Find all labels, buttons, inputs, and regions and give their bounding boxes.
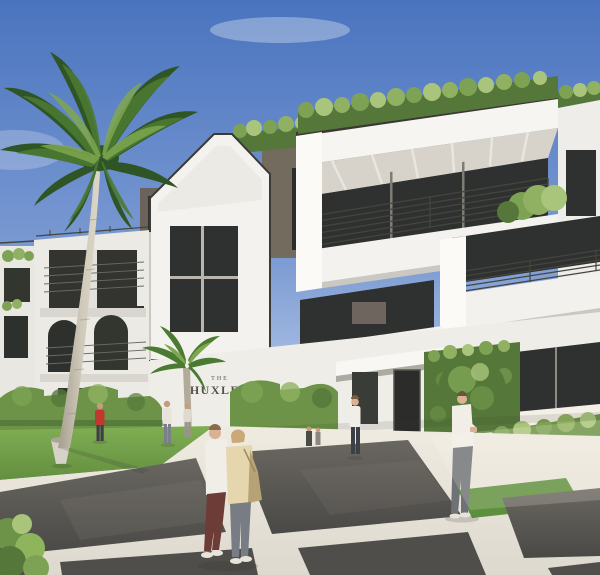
scene-canvas: THE HUXLEY [0, 0, 600, 575]
architectural-rendering: THE HUXLEY [0, 0, 600, 575]
topiary-ball [438, 356, 506, 424]
cloud [210, 17, 350, 43]
sign-line1: THE [211, 376, 229, 382]
